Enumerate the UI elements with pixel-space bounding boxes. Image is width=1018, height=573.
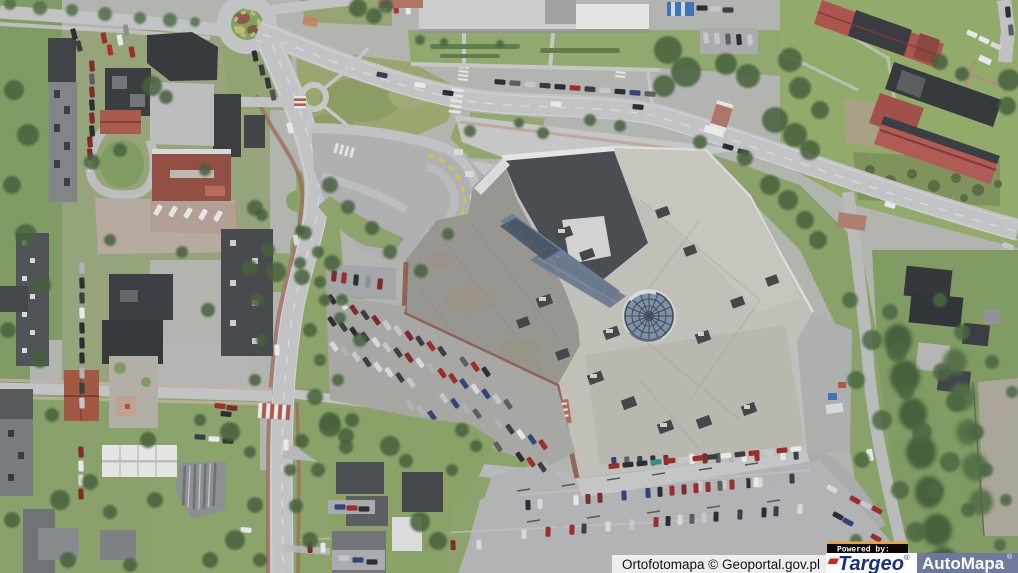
- svg-text:Targeo: Targeo: [838, 553, 904, 573]
- svg-text:®: ®: [1007, 553, 1013, 561]
- svg-text:Ortofotomapa © Geoportal.gov.p: Ortofotomapa © Geoportal.gov.pl: [622, 557, 820, 572]
- svg-text:®: ®: [904, 553, 910, 562]
- svg-text:AutoMapa: AutoMapa: [922, 554, 1005, 573]
